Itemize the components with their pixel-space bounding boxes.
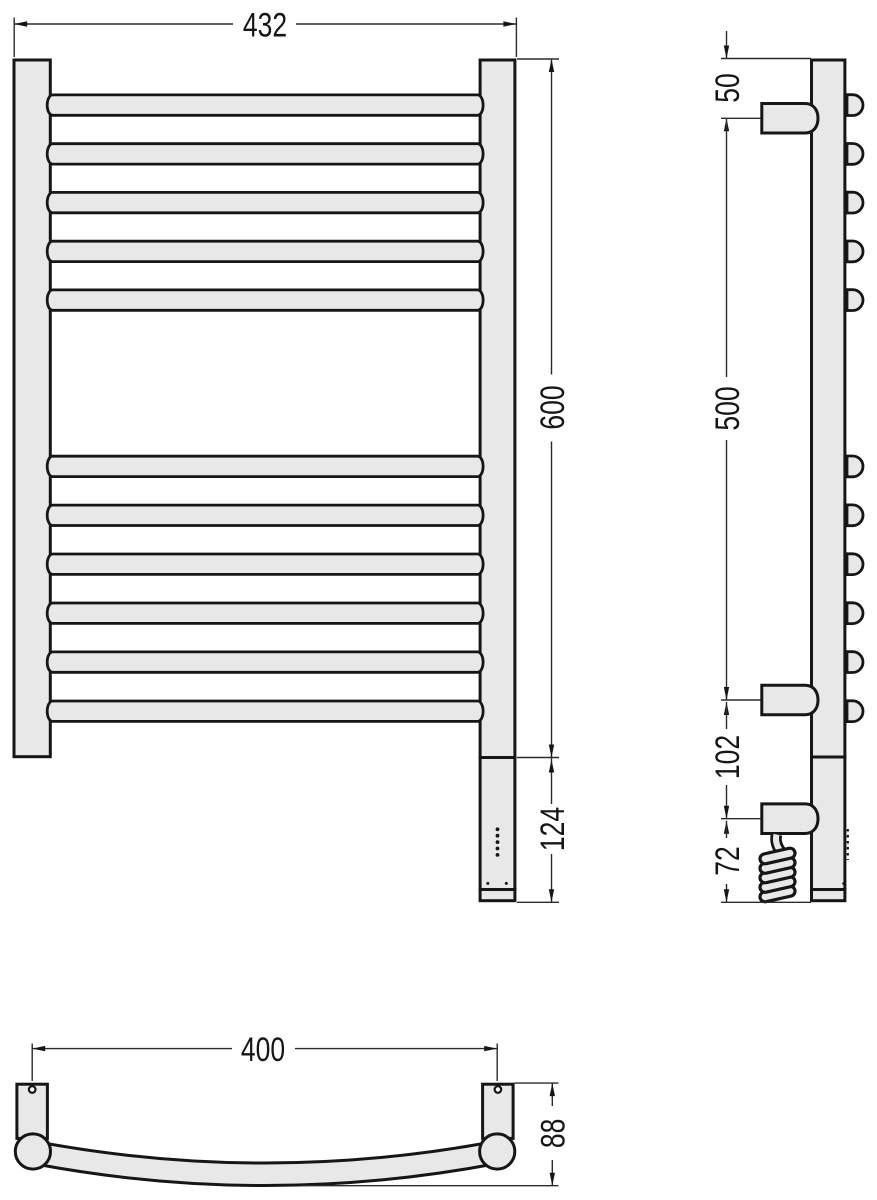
svg-text:50: 50 [709,73,747,103]
svg-text:400: 400 [241,1031,285,1069]
svg-text:102: 102 [709,735,747,779]
svg-text:124: 124 [534,807,572,851]
svg-text:432: 432 [243,6,287,44]
svg-text:600: 600 [534,385,572,429]
svg-text:500: 500 [709,386,747,430]
svg-text:72: 72 [709,846,747,876]
svg-text:88: 88 [535,1119,573,1149]
